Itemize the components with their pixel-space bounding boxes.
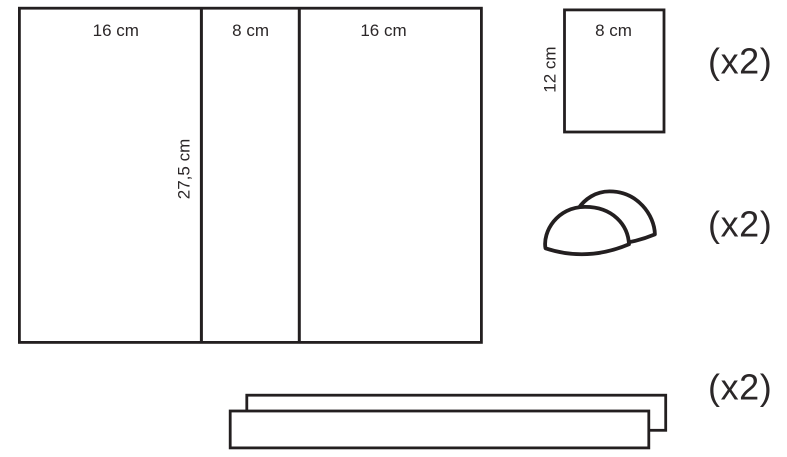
svg-text:8 cm: 8 cm	[232, 21, 269, 40]
svg-text:(x2): (x2)	[708, 366, 772, 407]
svg-text:27,5 cm: 27,5 cm	[175, 139, 194, 199]
svg-text:(x2): (x2)	[708, 204, 772, 245]
svg-text:12 cm: 12 cm	[541, 46, 560, 92]
svg-text:(x2): (x2)	[708, 41, 772, 82]
svg-text:16 cm: 16 cm	[360, 21, 406, 40]
svg-text:16 cm: 16 cm	[93, 21, 139, 40]
svg-text:8 cm: 8 cm	[595, 21, 632, 40]
